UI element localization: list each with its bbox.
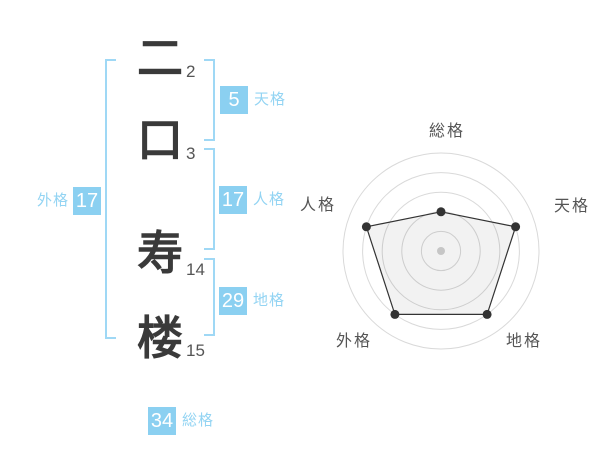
radar-axis-label: 天格 [554,197,590,215]
radar-center-dot [437,247,445,255]
radar-point [362,222,371,231]
radar-point [483,310,492,319]
radar-point [437,207,446,216]
radar-polygon [366,212,515,315]
radar-axis-label: 地格 [506,332,542,350]
radar-point [511,222,520,231]
radar-axis-label: 総格 [429,122,465,140]
radar-axis-label: 外格 [336,332,372,350]
name-analysis-panel: 二2口3寿14楼15 5 天格 17 人格 29 地格 34 総格 外格 17 … [0,0,600,470]
radar-point [390,310,399,319]
radar-axis-label: 人格 [300,196,336,214]
radar-chart: 総格天格地格外格人格 [0,0,600,470]
